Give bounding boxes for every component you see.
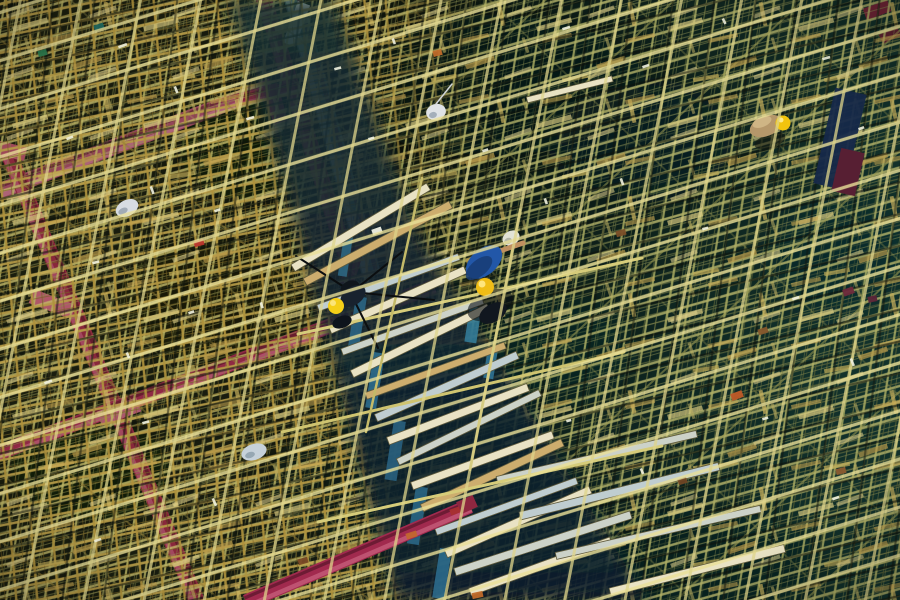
scene-svg: Aerial photograph: workers on dense bamb… — [0, 0, 900, 600]
vignette — [0, 0, 900, 600]
photo-canvas: Aerial photograph: workers on dense bamb… — [0, 0, 900, 600]
